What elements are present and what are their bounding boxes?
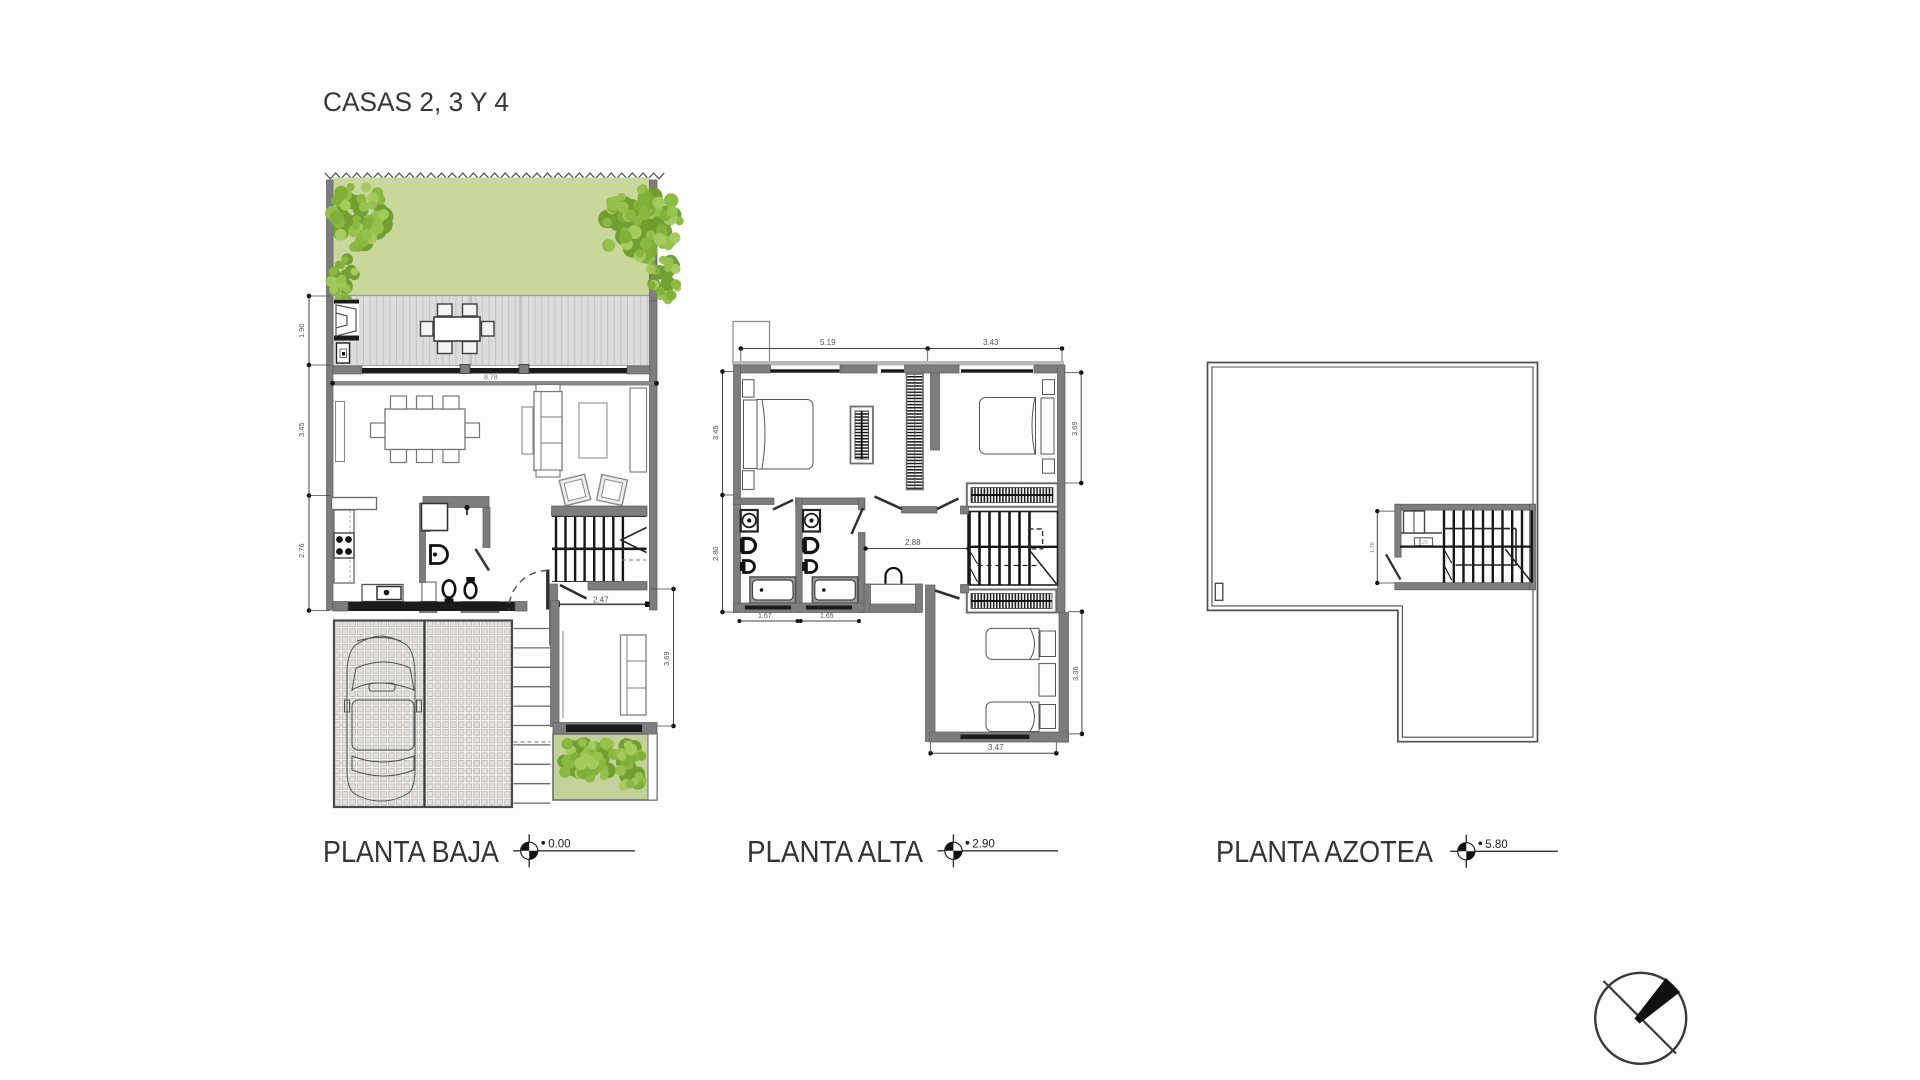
- svg-text:3.69: 3.69: [662, 651, 671, 666]
- svg-text:PLANTA ALTA: PLANTA ALTA: [747, 835, 924, 869]
- svg-text:2.47: 2.47: [593, 596, 609, 605]
- svg-text:PLANTA BAJA: PLANTA BAJA: [323, 835, 500, 869]
- svg-text:3.43: 3.43: [983, 338, 999, 347]
- svg-text:1.90: 1.90: [297, 323, 306, 338]
- svg-text:CASAS 2, 3 Y 4: CASAS 2, 3 Y 4: [323, 87, 509, 117]
- svg-text:3.47: 3.47: [988, 743, 1004, 752]
- svg-text:5.80: 5.80: [1485, 839, 1507, 851]
- svg-text:2.80: 2.80: [711, 546, 720, 561]
- svg-text:PLANTA AZOTEA: PLANTA AZOTEA: [1216, 835, 1434, 869]
- svg-text:2.88: 2.88: [905, 538, 921, 547]
- svg-text:1.70: 1.70: [1370, 542, 1376, 553]
- svg-text:1.67: 1.67: [758, 613, 772, 620]
- svg-text:0.00: 0.00: [548, 838, 570, 850]
- svg-text:5.19: 5.19: [820, 338, 836, 347]
- svg-text:8.78: 8.78: [484, 375, 498, 382]
- svg-text:2.90: 2.90: [972, 838, 994, 850]
- svg-text:3.69: 3.69: [1070, 421, 1079, 436]
- svg-text:1.65: 1.65: [820, 613, 834, 620]
- svg-text:3.45: 3.45: [297, 422, 306, 437]
- svg-text:3.45: 3.45: [711, 425, 720, 440]
- svg-text:1.20: 1.20: [1418, 540, 1428, 546]
- svg-text:3.36: 3.36: [1071, 666, 1080, 681]
- svg-text:2.76: 2.76: [297, 543, 306, 558]
